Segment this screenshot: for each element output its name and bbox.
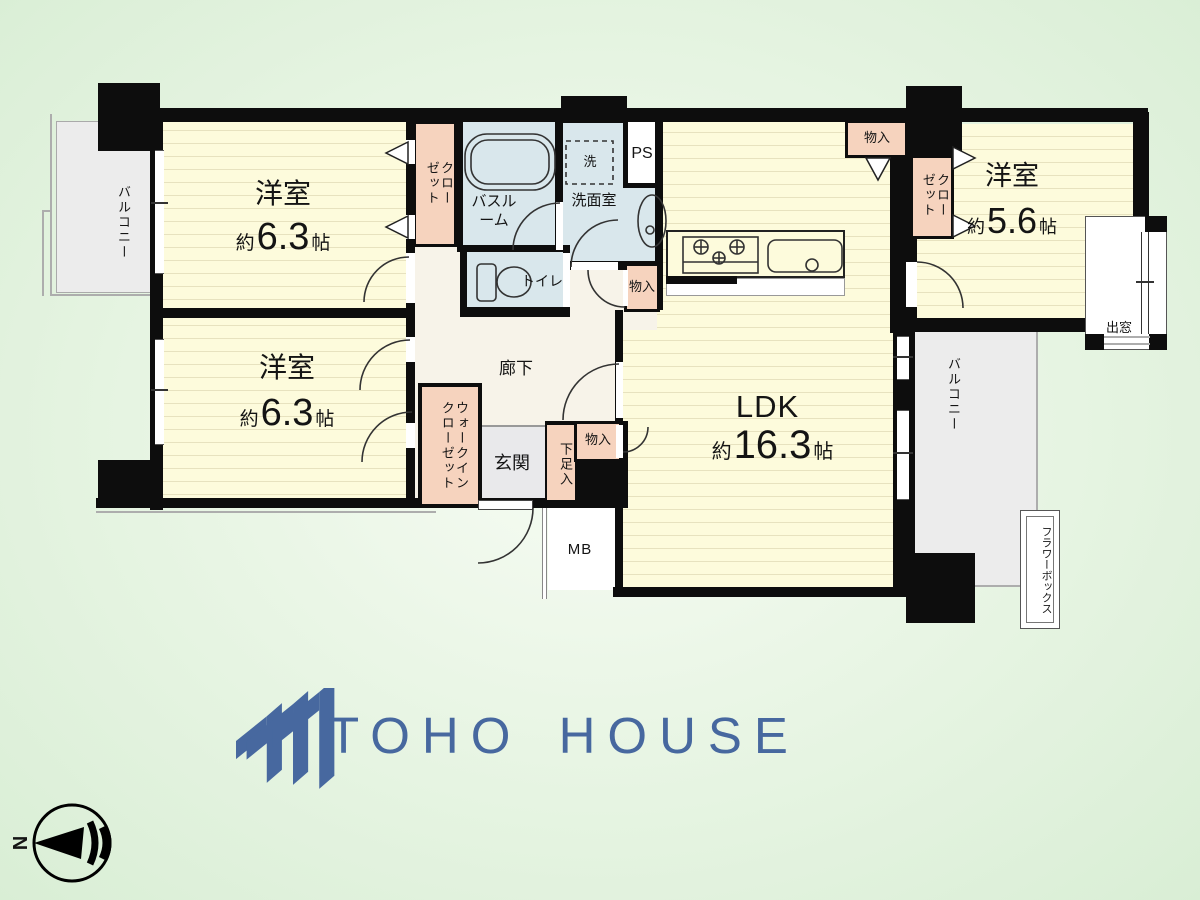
pillar <box>98 83 160 151</box>
closet-door-opening <box>406 140 415 164</box>
balcony-left-label: バルコニー <box>108 180 130 264</box>
door-opening <box>406 423 415 448</box>
ldk-floor <box>620 120 910 590</box>
washer-label: 洗 <box>580 154 600 170</box>
door-opening <box>571 262 618 270</box>
door-opening <box>406 337 415 362</box>
door-opening <box>406 253 415 303</box>
toilet-label: トイレ <box>516 273 568 291</box>
washroom-label: 洗面室 <box>562 192 626 211</box>
balcony-rail <box>1036 332 1038 514</box>
storage-wash-label: 物入 <box>626 279 658 295</box>
bedroom2-size: 約6.3帖 <box>177 390 397 438</box>
window <box>897 410 909 500</box>
flower-box-label: フラワーボックス <box>1028 520 1052 620</box>
bathroom-label: バスルーム <box>468 193 520 231</box>
brand-name: TOHO HOUSE <box>328 706 800 765</box>
entrance-label: 玄関 <box>482 452 542 475</box>
entrance-door <box>478 500 533 510</box>
bay-window-label: 出窓 <box>1098 320 1140 336</box>
closet-door-opening <box>406 215 415 239</box>
brand-logo: TOHO HOUSE <box>236 688 936 808</box>
storage-hall-label: 物入 <box>577 432 619 448</box>
exterior-outline <box>50 114 52 296</box>
bedroom2-name: 洋室 <box>177 350 397 385</box>
compass: N <box>10 796 120 896</box>
closet-right-label: クローゼット <box>917 168 949 222</box>
pillar <box>98 460 163 508</box>
wic-label: ウォークインクローゼット <box>434 398 468 493</box>
compass-needle <box>34 827 84 859</box>
hallway-label: 廊下 <box>486 358 546 379</box>
door-opening <box>906 262 917 307</box>
bedroom1-name: 洋室 <box>173 176 393 211</box>
kitchen-counter <box>666 230 845 278</box>
pillar <box>561 96 627 123</box>
balcony-right-label: バルコニー <box>938 352 960 436</box>
closet-left-label: クローゼット <box>421 156 453 210</box>
door-opening <box>616 362 623 418</box>
ldk-size: 約16.3帖 <box>655 420 890 470</box>
mb-label: MB <box>558 541 602 560</box>
bay-window-glass <box>1141 232 1149 334</box>
compass-north-label: N <box>8 832 30 854</box>
shoe-cabinet-label: 下足入 <box>550 436 572 492</box>
ps-label: PS <box>628 144 656 164</box>
window <box>155 150 164 274</box>
bedroom1-size: 約6.3帖 <box>173 214 393 262</box>
pillar <box>906 86 962 158</box>
exterior-outline <box>50 294 158 296</box>
window <box>897 336 909 380</box>
exterior-outline <box>42 210 44 296</box>
mb-pipe <box>542 507 547 599</box>
floorplan-page: 洋室 約6.3帖 洋室 約6.3帖 洋室 約5.6帖 LDK 約16.3帖 廊下… <box>0 0 1200 900</box>
pillar <box>906 553 975 623</box>
exterior-outline <box>96 511 436 513</box>
storage-top-label: 物入 <box>853 130 901 146</box>
window <box>155 339 164 445</box>
